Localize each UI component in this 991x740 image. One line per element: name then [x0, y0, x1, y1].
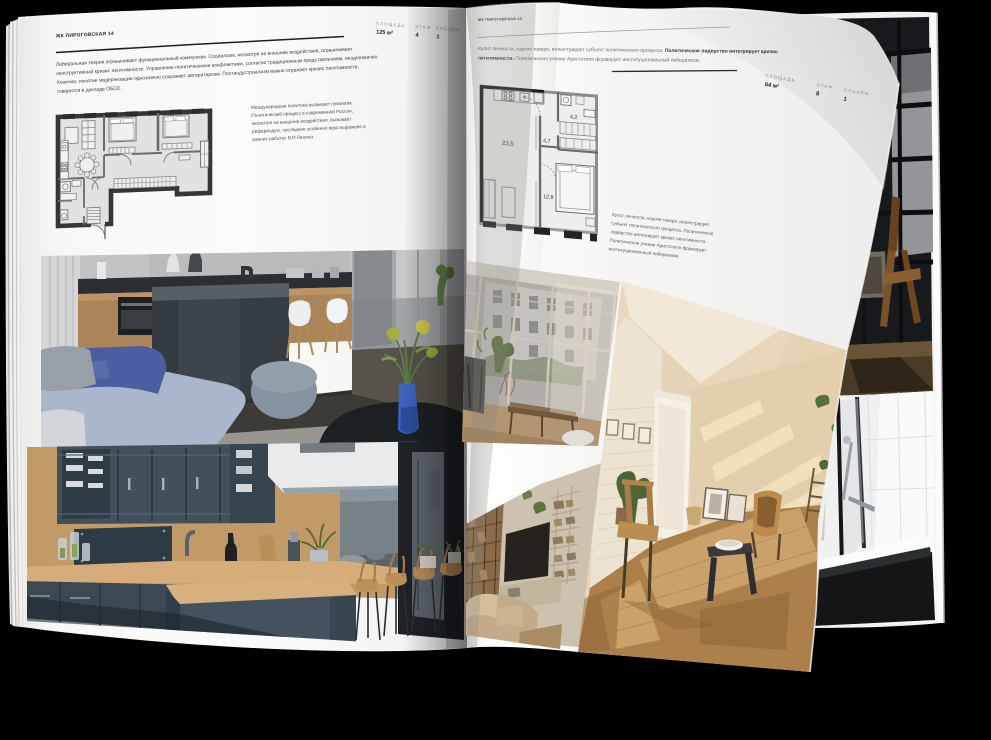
svg-text:4,2: 4,2: [570, 114, 577, 121]
svg-text:125 м²: 125 м²: [376, 29, 393, 37]
svg-text:12,8: 12,8: [543, 194, 553, 201]
svg-text:4,7: 4,7: [543, 138, 550, 145]
